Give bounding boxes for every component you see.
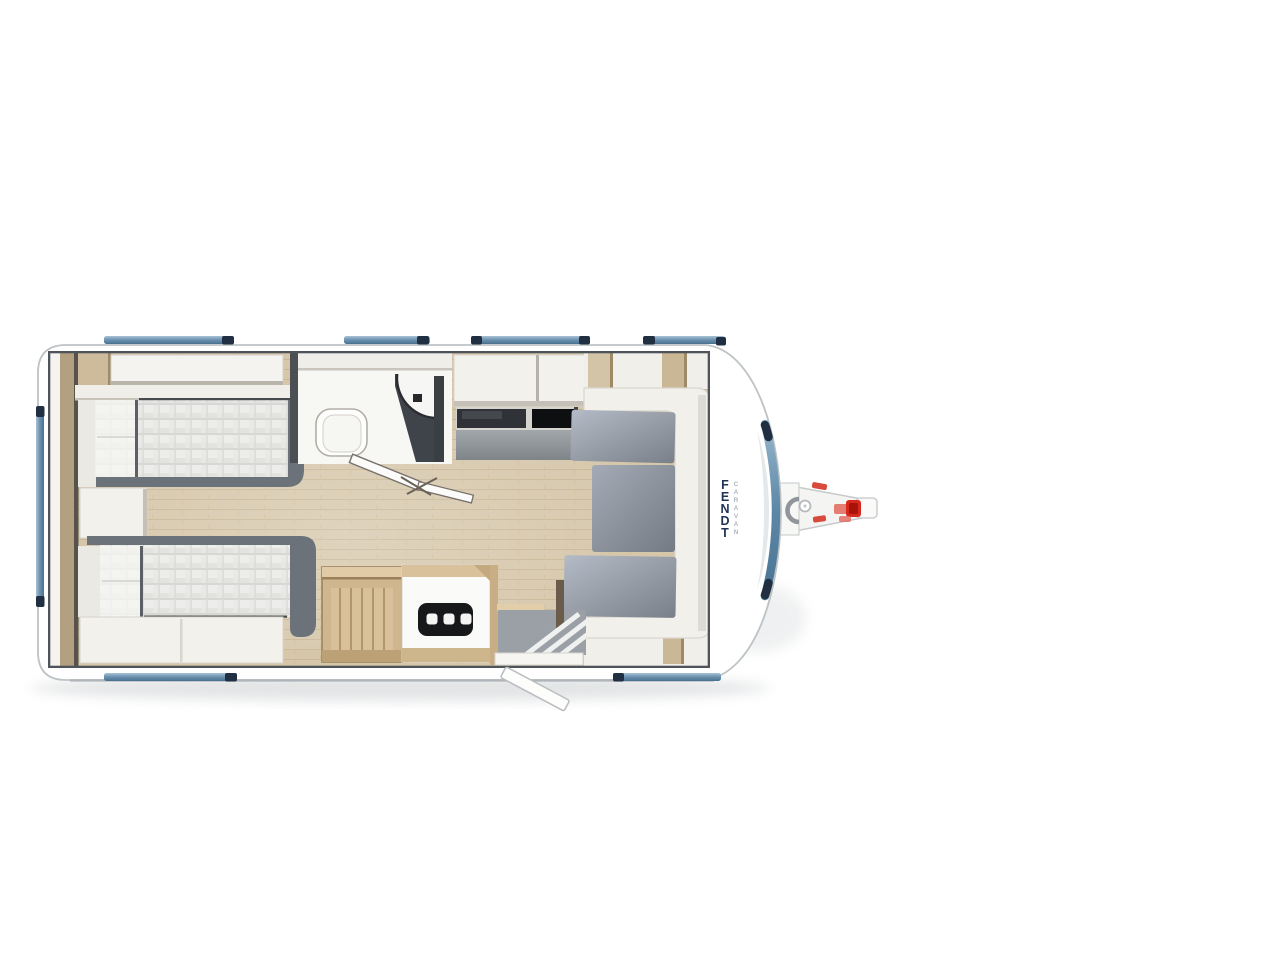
svg-text:R: R — [734, 497, 739, 504]
svg-text:T: T — [721, 526, 729, 540]
svg-text:A: A — [734, 489, 739, 496]
svg-text:A: A — [734, 505, 739, 512]
svg-text:N: N — [734, 529, 739, 536]
svg-text:V: V — [734, 513, 739, 520]
svg-text:A: A — [734, 521, 739, 528]
svg-text:C: C — [734, 481, 739, 488]
